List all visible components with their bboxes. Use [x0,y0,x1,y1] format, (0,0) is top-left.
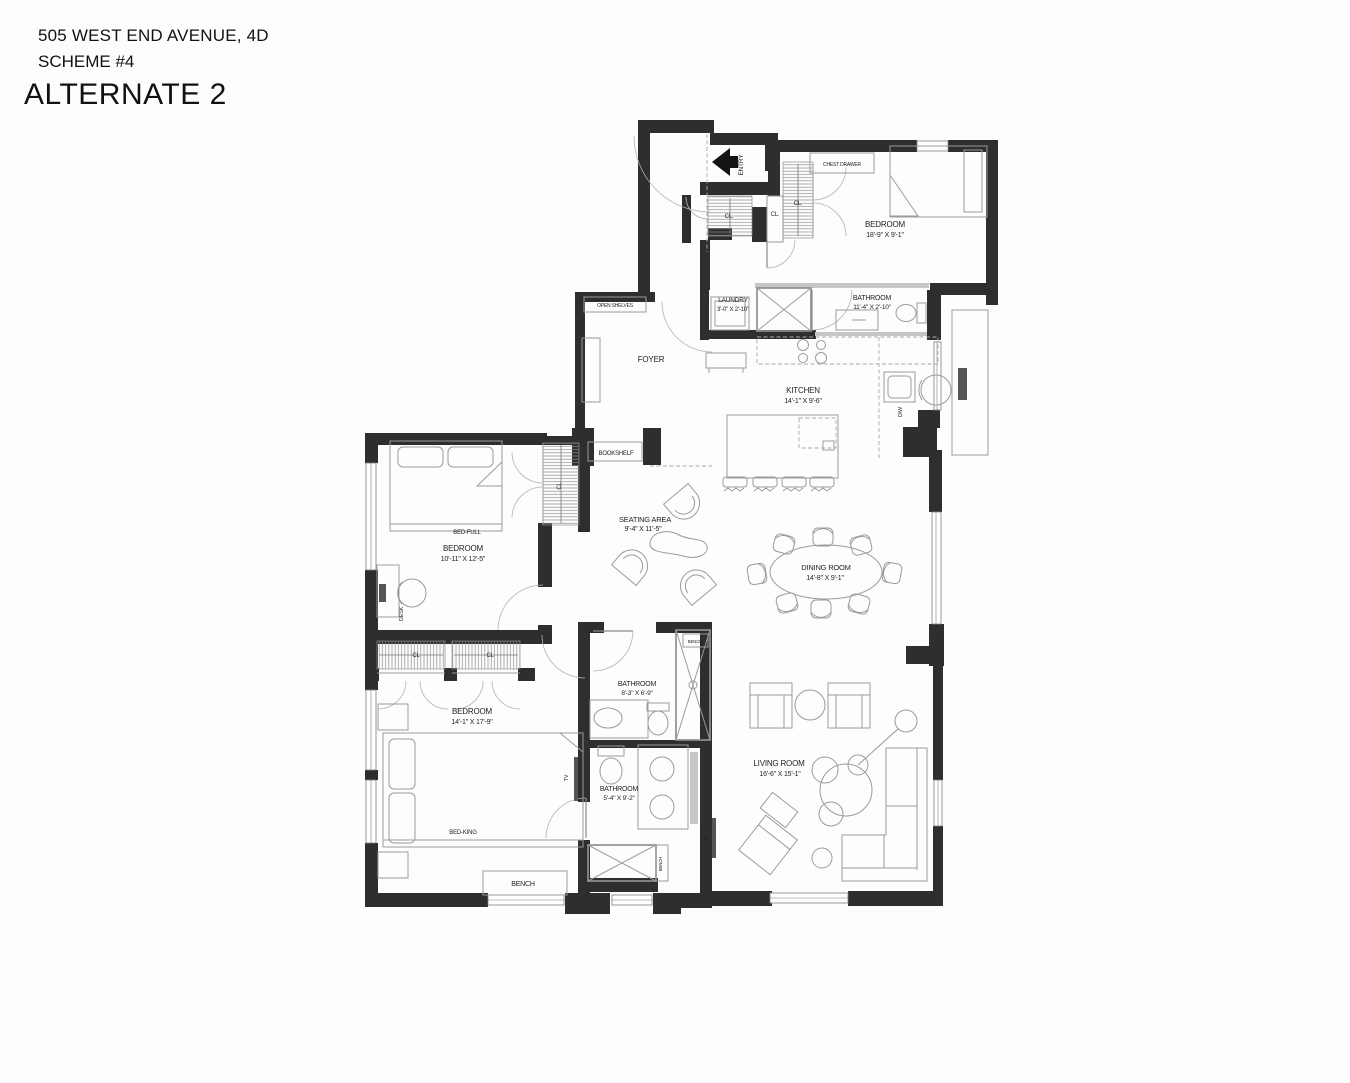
bench-label-shower-mid: BENCH [688,639,703,644]
seating-area-furniture [612,484,717,606]
tv-label-living: TV [704,834,710,841]
room-labels: ENTRY CHEST DRAWER BEDROOM 18'-9" X 9'-1… [399,154,906,888]
hall-bath-fixtures [757,288,926,331]
closets [377,162,813,673]
bathroom-hall-name: BATHROOM [853,295,892,302]
seating-area-name: SEATING AREA [619,515,671,524]
closet-label-king1: CL [412,653,420,659]
dining-room-name: DINING ROOM [801,563,850,572]
master-bathroom-fixtures [588,745,698,881]
bedroom-guest-name: BEDROOM [865,220,905,229]
closet-label-1: CL. [725,214,734,220]
kitchen-dims: 14'-1" X 9'-6" [784,398,822,405]
master-bedroom-furniture [378,704,583,895]
desk-label: DESK [399,606,405,621]
dining-furniture [746,528,902,618]
bathroom-middle-name: BATHROOM [618,681,657,688]
entry-arrow-icon [712,148,738,176]
seating-area-dims: 9'-4" X 11'-5" [624,526,662,533]
bookshelf-label: BOOKSHELF [599,451,634,457]
chest-drawer-label: CHEST DRAWER [823,162,861,168]
dining-room-dims: 14'-8" X 9'-1" [806,575,844,582]
closet-label-2: CL. [771,212,780,218]
kitchen-name: KITCHEN [786,386,820,395]
bedroom-master-dims: 14'-1" X 17'-9" [451,719,493,726]
furniture [377,146,988,895]
doors [378,134,852,838]
living-room-furniture [712,683,927,881]
closet-label-3: CL. [794,201,803,207]
tv-label-bedroom: TV [564,774,570,781]
dishwasher-label: D/W [898,406,904,417]
open-shelves-label: OPEN SHELVES [597,303,634,309]
bathroom-middle-dims: 8'-3" X 6'-9" [621,690,653,697]
bed-full-label: BED-FULL [453,530,481,536]
bathroom-master-dims: 5'-4" X 9'-2" [603,795,635,802]
laundry-dims: 3'-0" X 2'-10" [717,307,749,313]
bathroom-master-name: BATHROOM [600,786,639,793]
living-room-name: LIVING ROOM [753,759,805,768]
closet-label-king2: CL [486,653,494,659]
bench-label-shower-master: BENCH [658,857,663,872]
living-room-dims: 16'-6" X 15'-1" [759,771,801,778]
closet-label-full: CL [557,482,563,490]
middle-bedroom-furniture [377,441,502,617]
entry-label: ENTRY [738,154,745,176]
bedroom-master-name: BEDROOM [452,707,492,716]
walls [365,120,998,914]
bathroom-hall-dims: 11'-4" X 2'-10" [853,304,891,311]
bench-label-window: BENCH [511,881,535,888]
foyer-name: FOYER [638,355,665,364]
bedroom-middle-name: BEDROOM [443,544,483,553]
bedroom-middle-dims: 10'-11" X 12'-5" [441,556,486,563]
laundry-name: LAUNDRY [718,297,748,304]
floorplan-drawing: ENTRY CHEST DRAWER BEDROOM 18'-9" X 9'-1… [0,0,1350,1083]
island-stools [723,477,834,491]
bedroom-guest-dims: 18'-9" X 9'-1" [866,232,904,239]
bed-king-label: BED-KING [449,830,477,836]
floorplan-page: 505 WEST END AVENUE, 4D SCHEME #4 ALTERN… [0,0,1350,1083]
